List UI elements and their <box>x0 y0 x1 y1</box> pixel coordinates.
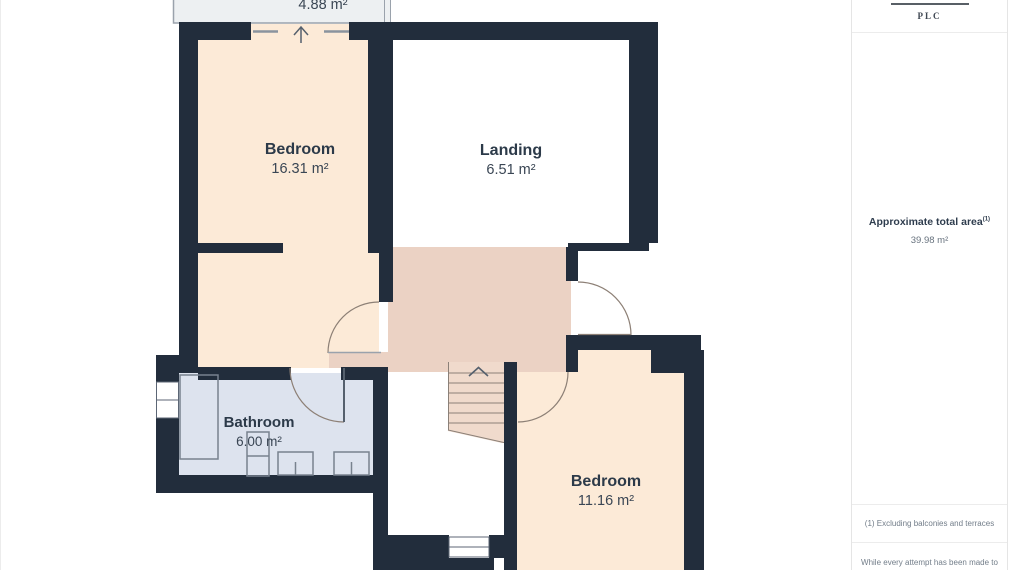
balcony-room <box>174 0 391 23</box>
info-sidebar: PLC Approximate total area(1) 39.98 m² (… <box>851 0 1008 570</box>
total-area-value: 39.98 m² <box>852 235 1007 246</box>
footnote-disclaimer: While every attempt has been made to <box>852 543 1007 570</box>
bedroom-top-area: 16.31 m² <box>271 161 328 177</box>
door-hall-right <box>578 282 631 335</box>
bedroom-top-name: Bedroom <box>265 141 335 158</box>
inner-hall-fill-lower <box>198 350 331 368</box>
bedroom-bottom-area: 11.16 m² <box>578 493 634 509</box>
inner-hall-fill <box>198 248 379 355</box>
agency-logo: PLC <box>852 0 1007 33</box>
logo-rule <box>891 3 969 5</box>
bedroom-top-fill <box>198 24 368 253</box>
bathroom-area: 6.00 m² <box>236 434 282 449</box>
floorplan-panel: 4.88 m² Bedroom 16.31 m² Landing 6.51 m²… <box>0 0 851 570</box>
sidebar-main: Approximate total area(1) 39.98 m² <box>852 33 1007 505</box>
bedroom-bottom-fill-top <box>574 347 651 373</box>
landing-area: 6.51 m² <box>486 162 535 178</box>
hallway-fill-ext <box>329 352 388 368</box>
bathroom-window <box>157 382 179 418</box>
floorplan-page: 4.88 m² Bedroom 16.31 m² Landing 6.51 m²… <box>0 0 1011 570</box>
total-area-block: Approximate total area(1) 39.98 m² <box>852 216 1007 246</box>
bottom-window <box>449 537 489 557</box>
landing-name: Landing <box>480 142 542 159</box>
total-area-label: Approximate total area(1) <box>852 216 1007 228</box>
footnote-disclaimer-text: While every attempt has been made to <box>861 558 998 567</box>
balcony-area-label: 4.88 m² <box>298 0 347 13</box>
floorplan-drawing: 4.88 m² Bedroom 16.31 m² Landing 6.51 m²… <box>1 0 852 570</box>
total-area-superscript: (1) <box>983 217 990 223</box>
bedroom-bottom-fill <box>517 372 684 570</box>
total-area-label-text: Approximate total area <box>869 216 983 228</box>
bedroom-bottom-name: Bedroom <box>571 473 641 490</box>
footnote-excluding: (1) Excluding balconies and terraces <box>852 505 1007 543</box>
bathroom-name: Bathroom <box>224 414 295 431</box>
logo-text: PLC <box>918 11 942 21</box>
hallway-fill <box>388 247 571 372</box>
footnote-excluding-text: (1) Excluding balconies and terraces <box>865 519 994 528</box>
